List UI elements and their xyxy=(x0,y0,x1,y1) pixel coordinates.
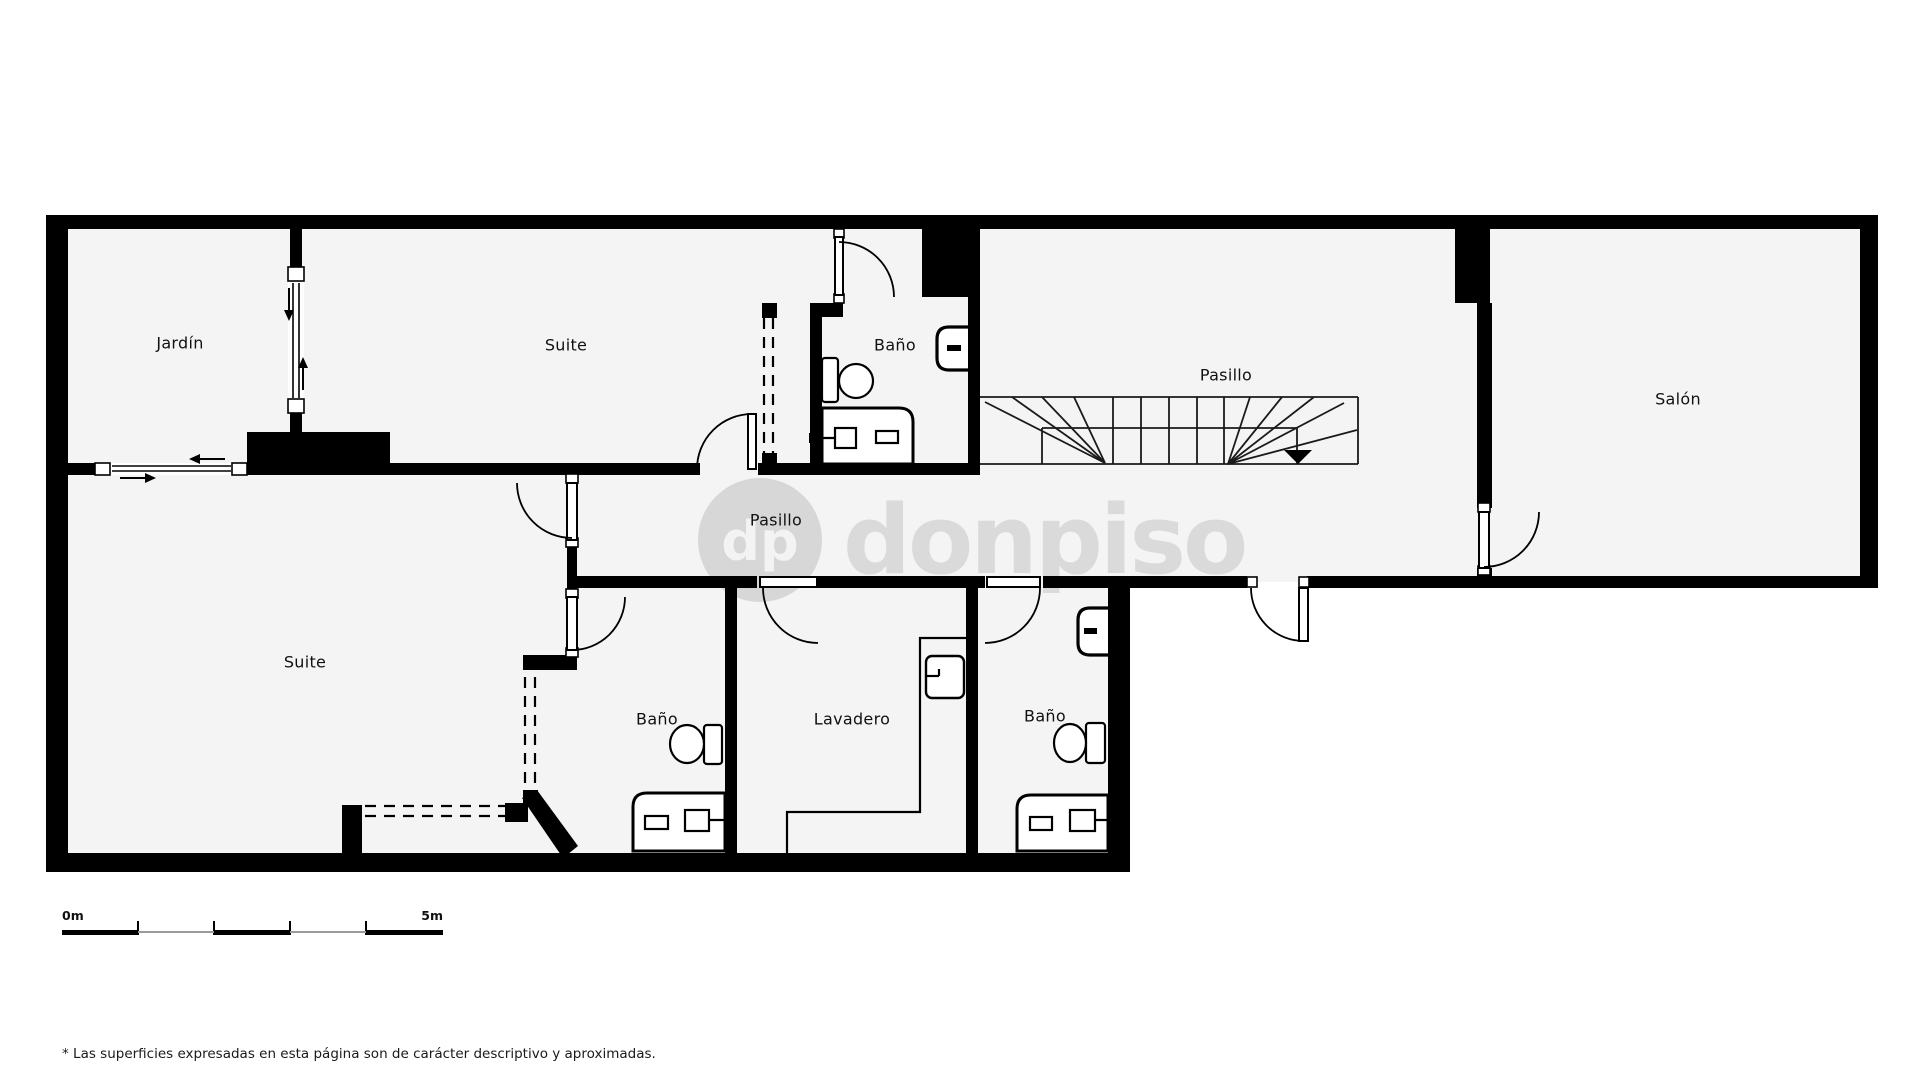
shower-icon xyxy=(937,327,970,370)
scale-start-label: 0m xyxy=(62,908,84,923)
room-label-jardin: Jardín xyxy=(156,334,203,353)
room-label-lavadero: Lavadero xyxy=(814,710,890,729)
room-label-pasillo-corridor: Pasillo xyxy=(750,511,802,530)
scale-segment xyxy=(214,930,290,935)
shower-icon xyxy=(1078,608,1108,655)
toilet-icon xyxy=(670,725,722,764)
room-label-salon: Salón xyxy=(1655,390,1701,409)
room-label-suite-bottom: Suite xyxy=(284,653,326,672)
toilet-icon xyxy=(1054,723,1105,763)
entrance-door-swing xyxy=(1247,577,1309,641)
room-label-bano-bottom-right: Baño xyxy=(1024,707,1066,726)
scale-segment xyxy=(62,930,138,935)
sink-vanity-icon xyxy=(1017,795,1114,851)
washer-icon xyxy=(926,656,964,698)
scale-end-label: 5m xyxy=(421,908,443,923)
footnote-disclaimer: * Las superficies expresadas en esta pág… xyxy=(62,1046,656,1062)
scale-segment xyxy=(290,931,366,933)
sink-vanity-icon xyxy=(810,408,913,464)
room-label-suite-top: Suite xyxy=(545,336,587,355)
scale-bar: 0m 5m xyxy=(62,908,443,940)
sink-vanity-icon xyxy=(633,793,734,851)
room-label-bano-top: Baño xyxy=(874,336,916,355)
room-label-pasillo-stairs: Pasillo xyxy=(1200,366,1252,385)
floorplan-page: dp donpiso xyxy=(0,0,1920,1080)
scale-segment xyxy=(138,931,214,933)
scale-segment xyxy=(366,930,443,935)
room-label-bano-bottom-left: Baño xyxy=(636,710,678,729)
